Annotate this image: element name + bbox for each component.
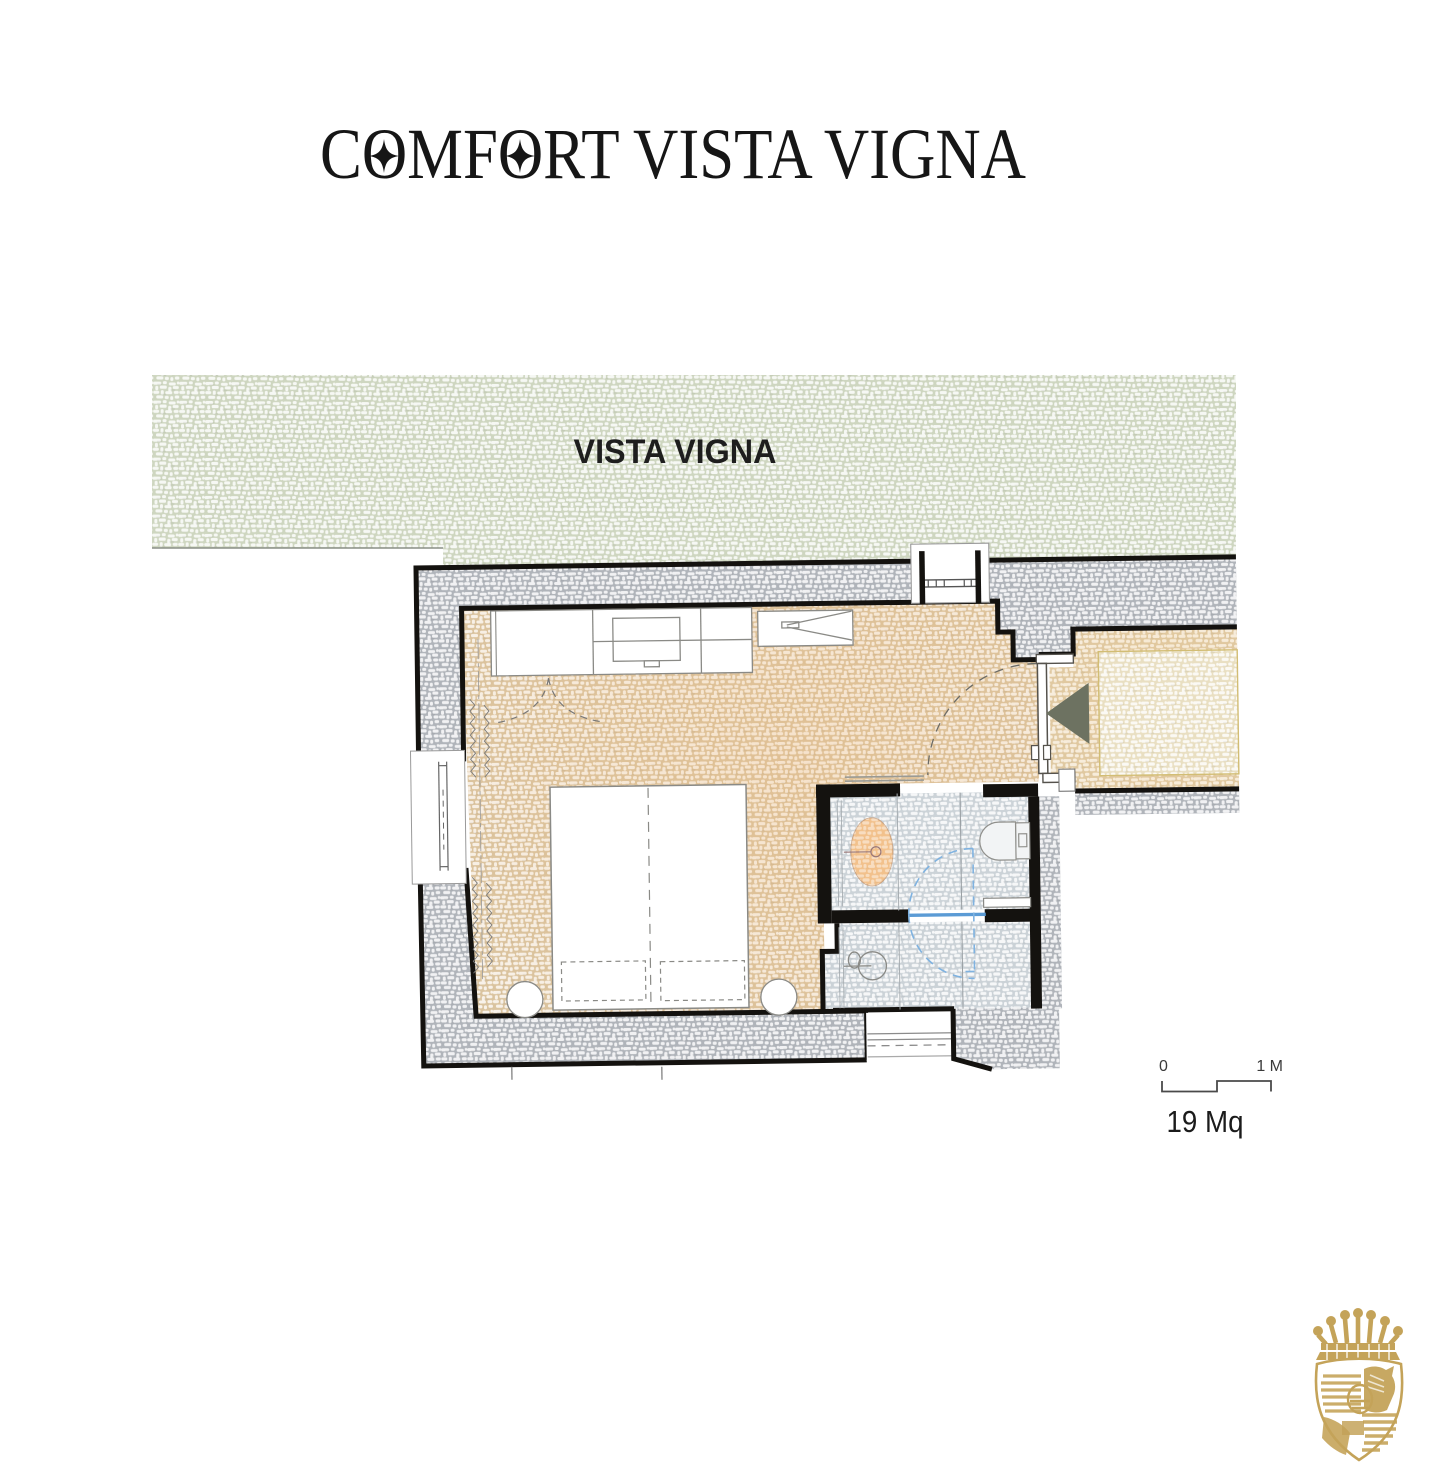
svg-text:19 Mq: 19 Mq <box>1167 1104 1244 1139</box>
svg-text:0: 0 <box>1159 1058 1168 1075</box>
svg-text:1 M: 1 M <box>1256 1058 1283 1075</box>
svg-text:COMFORT VISTA VIGNA: COMFORT VISTA VIGNA <box>320 114 1026 194</box>
svg-text:VISTA VIGNA: VISTA VIGNA <box>574 433 777 471</box>
